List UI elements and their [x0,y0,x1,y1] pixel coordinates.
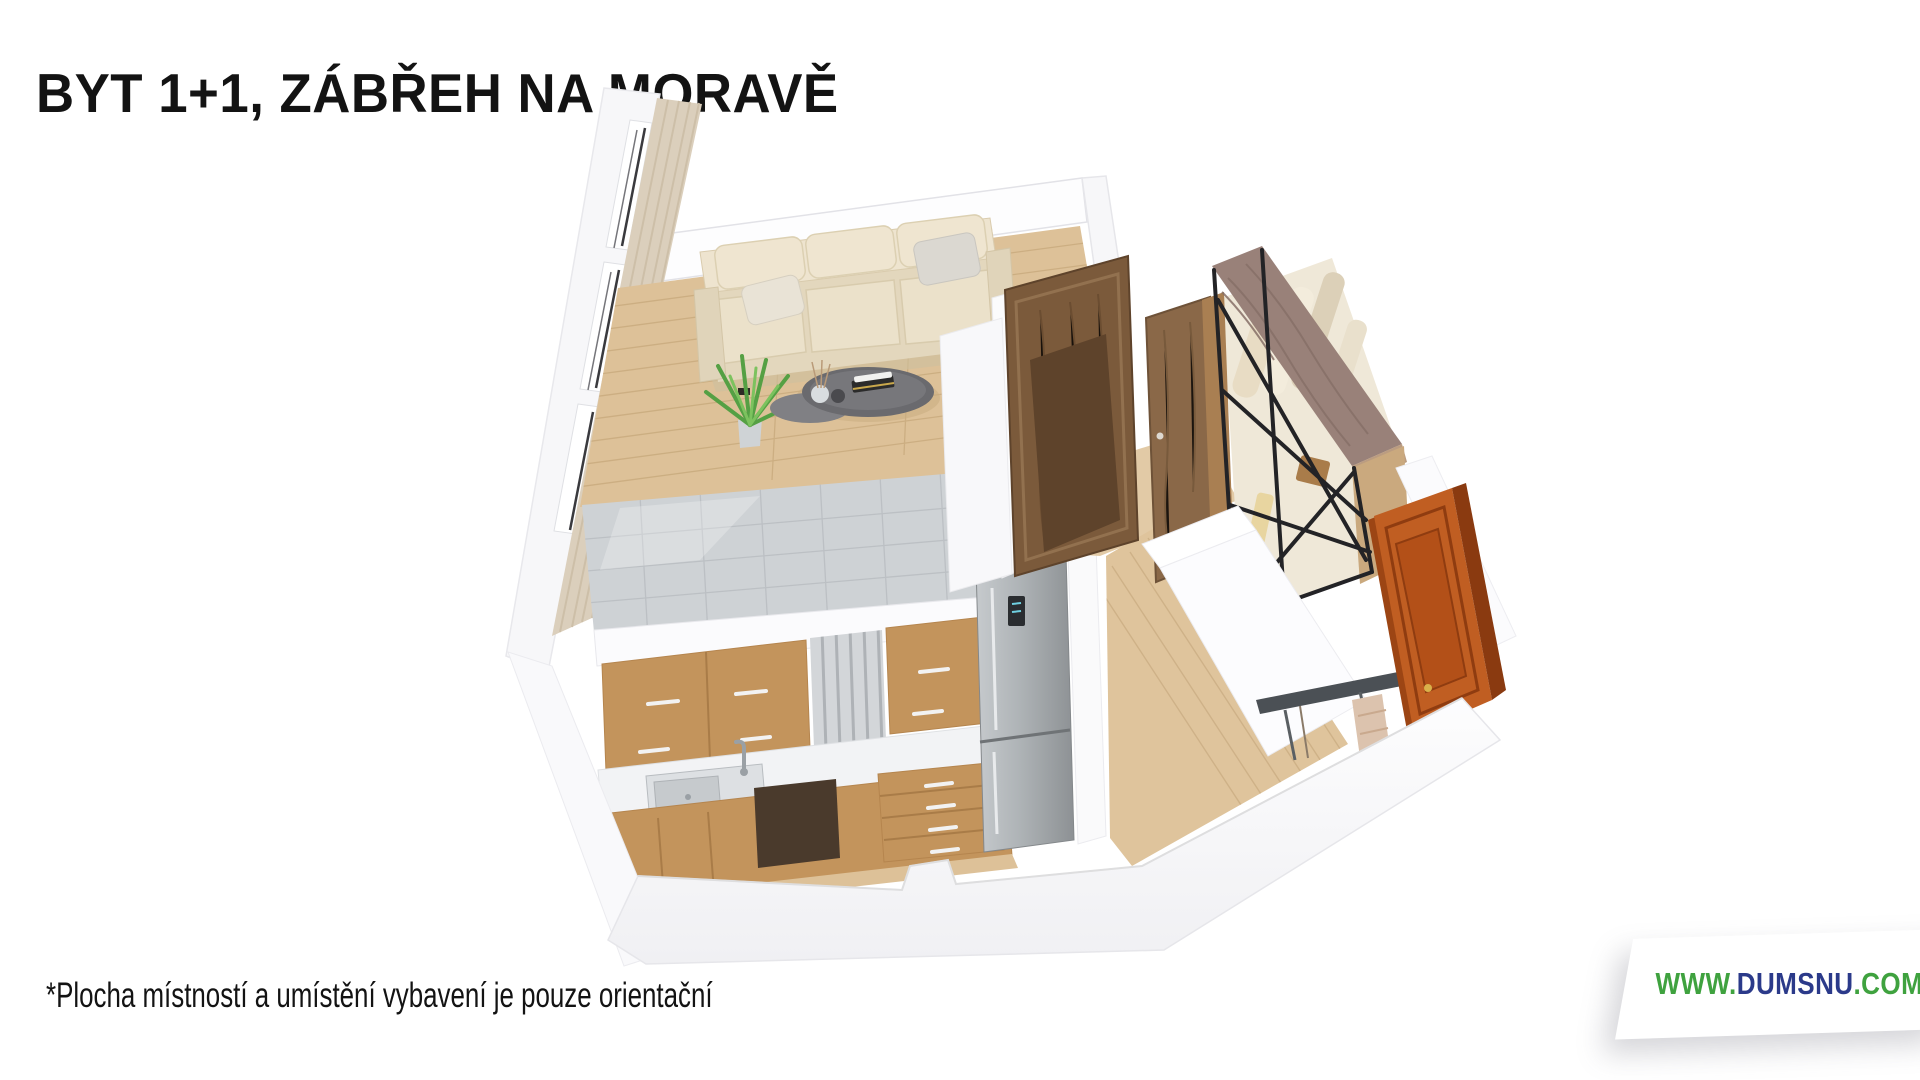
watermark-url: WWW.DUMSNU.COM [1655,966,1920,1002]
open-door-leaf [1030,334,1120,552]
slat-panel [810,626,886,750]
bathroom-wall [940,318,1012,592]
watermark-tld: .COM [1853,966,1920,1001]
disclaimer-note: *Plocha místností a umístění vybavení je… [46,976,713,1016]
floor-plan-render [0,0,1920,1080]
door-knob [1424,684,1432,692]
wall-beside-fridge [1068,544,1106,844]
watermark-prefix: WWW. [1655,966,1736,1001]
page: BYT 1+1, ZÁBŘEH NA MORAVĚ [0,0,1920,1080]
entrance-door [1368,483,1506,736]
watermark-banner: WWW.DUMSNU.COM [1615,929,1920,1040]
watermark-name: DUMSNU [1736,966,1853,1001]
oven-appliance [754,779,840,868]
refrigerator [976,546,1074,852]
